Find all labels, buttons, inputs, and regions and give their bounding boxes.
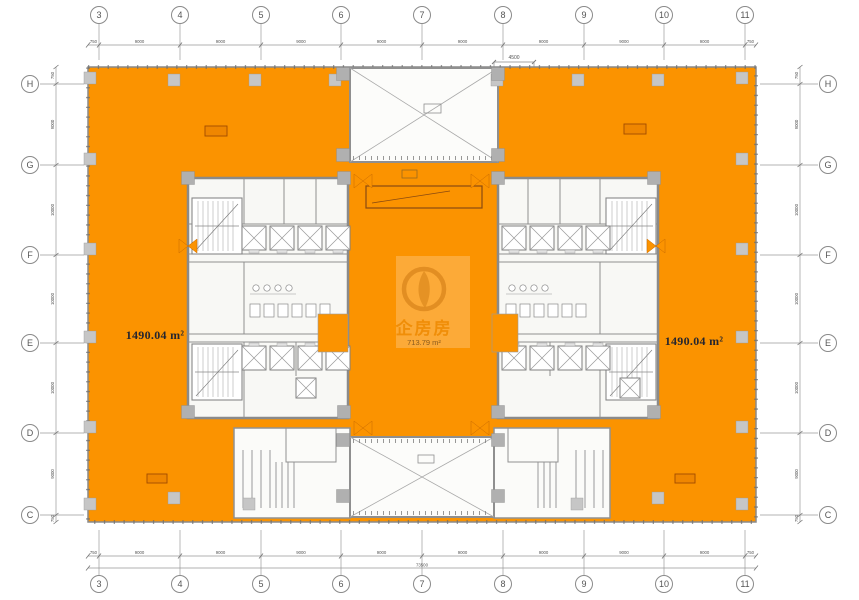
sink: [275, 285, 281, 291]
elevator-door: [565, 250, 575, 253]
column: [243, 498, 255, 510]
dim-text: 750: [50, 71, 55, 79]
equipment-rect: [675, 474, 695, 483]
dim-text: 9000: [296, 550, 306, 555]
right-wing-area-label: 1490.04 m²: [665, 334, 724, 348]
toilet-stall: [250, 304, 260, 317]
left-wing-area-label: 1490.04 m²: [126, 328, 185, 342]
grid-label-bottom: 7: [419, 579, 424, 589]
column: [571, 498, 583, 510]
column: [337, 490, 350, 503]
column: [652, 74, 664, 86]
column: [84, 153, 96, 165]
dim-text: 9000: [700, 550, 710, 555]
dim-text: 750: [794, 71, 799, 79]
grid-label-left: D: [27, 428, 34, 438]
grid-label-top: 4: [177, 10, 182, 20]
dim-text: 9000: [619, 39, 629, 44]
elevator-door: [277, 250, 287, 253]
grid-label-left: C: [27, 510, 34, 520]
elevator-door: [249, 250, 259, 253]
grid-label-bottom: 8: [500, 579, 505, 589]
dim-text: 9000: [458, 39, 468, 44]
toilet-stall: [576, 304, 586, 317]
sink: [520, 285, 526, 291]
dim-text: 750: [90, 39, 98, 44]
column: [168, 492, 180, 504]
column: [492, 434, 505, 447]
sink: [509, 285, 515, 291]
elevator-door: [333, 250, 343, 253]
grid-label-top: 8: [500, 10, 505, 20]
column: [249, 74, 261, 86]
elevator-door: [593, 250, 603, 253]
equipment-rect: [624, 124, 646, 134]
top-atrium: [350, 68, 498, 162]
dim-text: 9000: [216, 39, 226, 44]
column: [736, 243, 748, 255]
column: [736, 421, 748, 433]
dim-text: 10000: [50, 203, 55, 216]
grid-label-top: 9: [581, 10, 586, 20]
column: [492, 490, 505, 503]
column: [84, 243, 96, 255]
elevator-door: [305, 343, 315, 346]
grid-label-top: 6: [338, 10, 343, 20]
dim-top-center-text: 4500: [508, 55, 519, 61]
elevator-door: [249, 343, 259, 346]
dim-text: 750: [90, 550, 98, 555]
grid-label-bottom: 3: [96, 579, 101, 589]
grid-label-left: H: [27, 79, 34, 89]
grid-label-top: 11: [740, 10, 749, 20]
bottom-block: [234, 428, 610, 518]
column: [492, 149, 505, 162]
column: [736, 153, 748, 165]
elevator-door: [565, 343, 575, 346]
grid-label-top: 7: [419, 10, 424, 20]
toilet-stall: [520, 304, 530, 317]
dim-text: 10000: [50, 381, 55, 394]
column: [84, 331, 96, 343]
sink: [531, 285, 537, 291]
dim-text: 750: [747, 39, 755, 44]
dim-text: 750: [794, 514, 799, 522]
column: [182, 406, 195, 419]
dim-text: 9000: [216, 550, 226, 555]
dim-text: 750: [747, 550, 755, 555]
grid-label-top: 5: [258, 10, 263, 20]
grid-label-bottom: 11: [740, 579, 749, 589]
grid-label-right: D: [825, 428, 832, 438]
elevator-door: [537, 343, 547, 346]
sink: [264, 285, 270, 291]
grid-label-bottom: 9: [581, 579, 586, 589]
column: [84, 421, 96, 433]
toilet-stall: [264, 304, 274, 317]
toilet-stall: [278, 304, 288, 317]
column: [736, 498, 748, 510]
dim-text: 9000: [377, 39, 387, 44]
dim-text: 9000: [539, 39, 549, 44]
column: [168, 74, 180, 86]
dim-text: 9000: [794, 119, 799, 129]
dim-text: 9000: [377, 550, 387, 555]
equipment-rect: [147, 474, 167, 483]
column: [337, 68, 350, 81]
column: [648, 406, 661, 419]
watermark: 企房房 713.79 m²: [395, 256, 471, 348]
toilet-stall: [534, 304, 544, 317]
grid-label-left: E: [27, 338, 33, 348]
dim-text: 9000: [50, 119, 55, 129]
grid-label-top: 3: [96, 10, 101, 20]
dim-text: 9000: [296, 39, 306, 44]
grid-label-left: F: [27, 250, 33, 260]
dim-text: 10000: [50, 292, 55, 305]
reception-desk: [366, 186, 482, 208]
grid-label-bottom: 10: [659, 579, 669, 589]
grid-label-bottom: 5: [258, 579, 263, 589]
sink: [286, 285, 292, 291]
dim-text: 10000: [794, 292, 799, 305]
column: [572, 74, 584, 86]
toilet-stall: [306, 304, 316, 317]
column: [652, 492, 664, 504]
column: [84, 498, 96, 510]
dim-text: 10000: [794, 203, 799, 216]
sink: [542, 285, 548, 291]
floor-plan-drawing: 企房房 713.79 m² 1490.04 m² 1490.04 m² 4500…: [0, 0, 859, 600]
column: [338, 406, 351, 419]
dim-text: 9000: [700, 39, 710, 44]
grid-label-right: F: [825, 250, 831, 260]
dim-text: 750: [50, 514, 55, 522]
equipment-rect: [205, 126, 227, 136]
grid-label-right: E: [825, 338, 831, 348]
column: [736, 72, 748, 84]
elevator-door: [305, 250, 315, 253]
column: [337, 434, 350, 447]
elevator-door: [509, 250, 519, 253]
column: [648, 172, 661, 185]
elevator-door: [537, 250, 547, 253]
column: [337, 149, 350, 162]
dim-text: 10000: [794, 381, 799, 394]
elevator-door: [593, 343, 603, 346]
dim-text: 9000: [794, 469, 799, 479]
grid-label-top: 10: [659, 10, 669, 20]
dim-text-total: 73500: [416, 563, 429, 568]
toilet-stall: [562, 304, 572, 317]
watermark-brand-text: 企房房: [395, 318, 453, 339]
grid-label-bottom: 4: [177, 579, 182, 589]
column: [338, 172, 351, 185]
column: [84, 72, 96, 84]
center-area-label: 713.79 m²: [407, 338, 441, 347]
floor-plan-page: 企房房 713.79 m² 1490.04 m² 1490.04 m² 4500…: [0, 0, 859, 600]
bottom-room-right: [494, 428, 610, 518]
column: [492, 68, 505, 81]
dim-text: 9000: [50, 469, 55, 479]
toilet-stall: [548, 304, 558, 317]
grid-label-left: G: [26, 160, 33, 170]
lobby-notch-left: [318, 314, 348, 352]
grid-label-right: H: [825, 79, 832, 89]
dim-text: 9000: [458, 550, 468, 555]
grid-label-right: G: [824, 160, 831, 170]
column: [182, 172, 195, 185]
elevator-door: [277, 343, 287, 346]
grid-label-right: C: [825, 510, 832, 520]
column: [736, 331, 748, 343]
dim-text: 9000: [135, 550, 145, 555]
dim-text: 9000: [135, 39, 145, 44]
grid-label-bottom: 6: [338, 579, 343, 589]
lobby-notch-right: [492, 314, 518, 352]
dim-text: 9000: [539, 550, 549, 555]
toilet-stall: [292, 304, 302, 317]
dim-text: 9000: [619, 550, 629, 555]
sink: [253, 285, 259, 291]
column: [492, 172, 505, 185]
column: [492, 406, 505, 419]
